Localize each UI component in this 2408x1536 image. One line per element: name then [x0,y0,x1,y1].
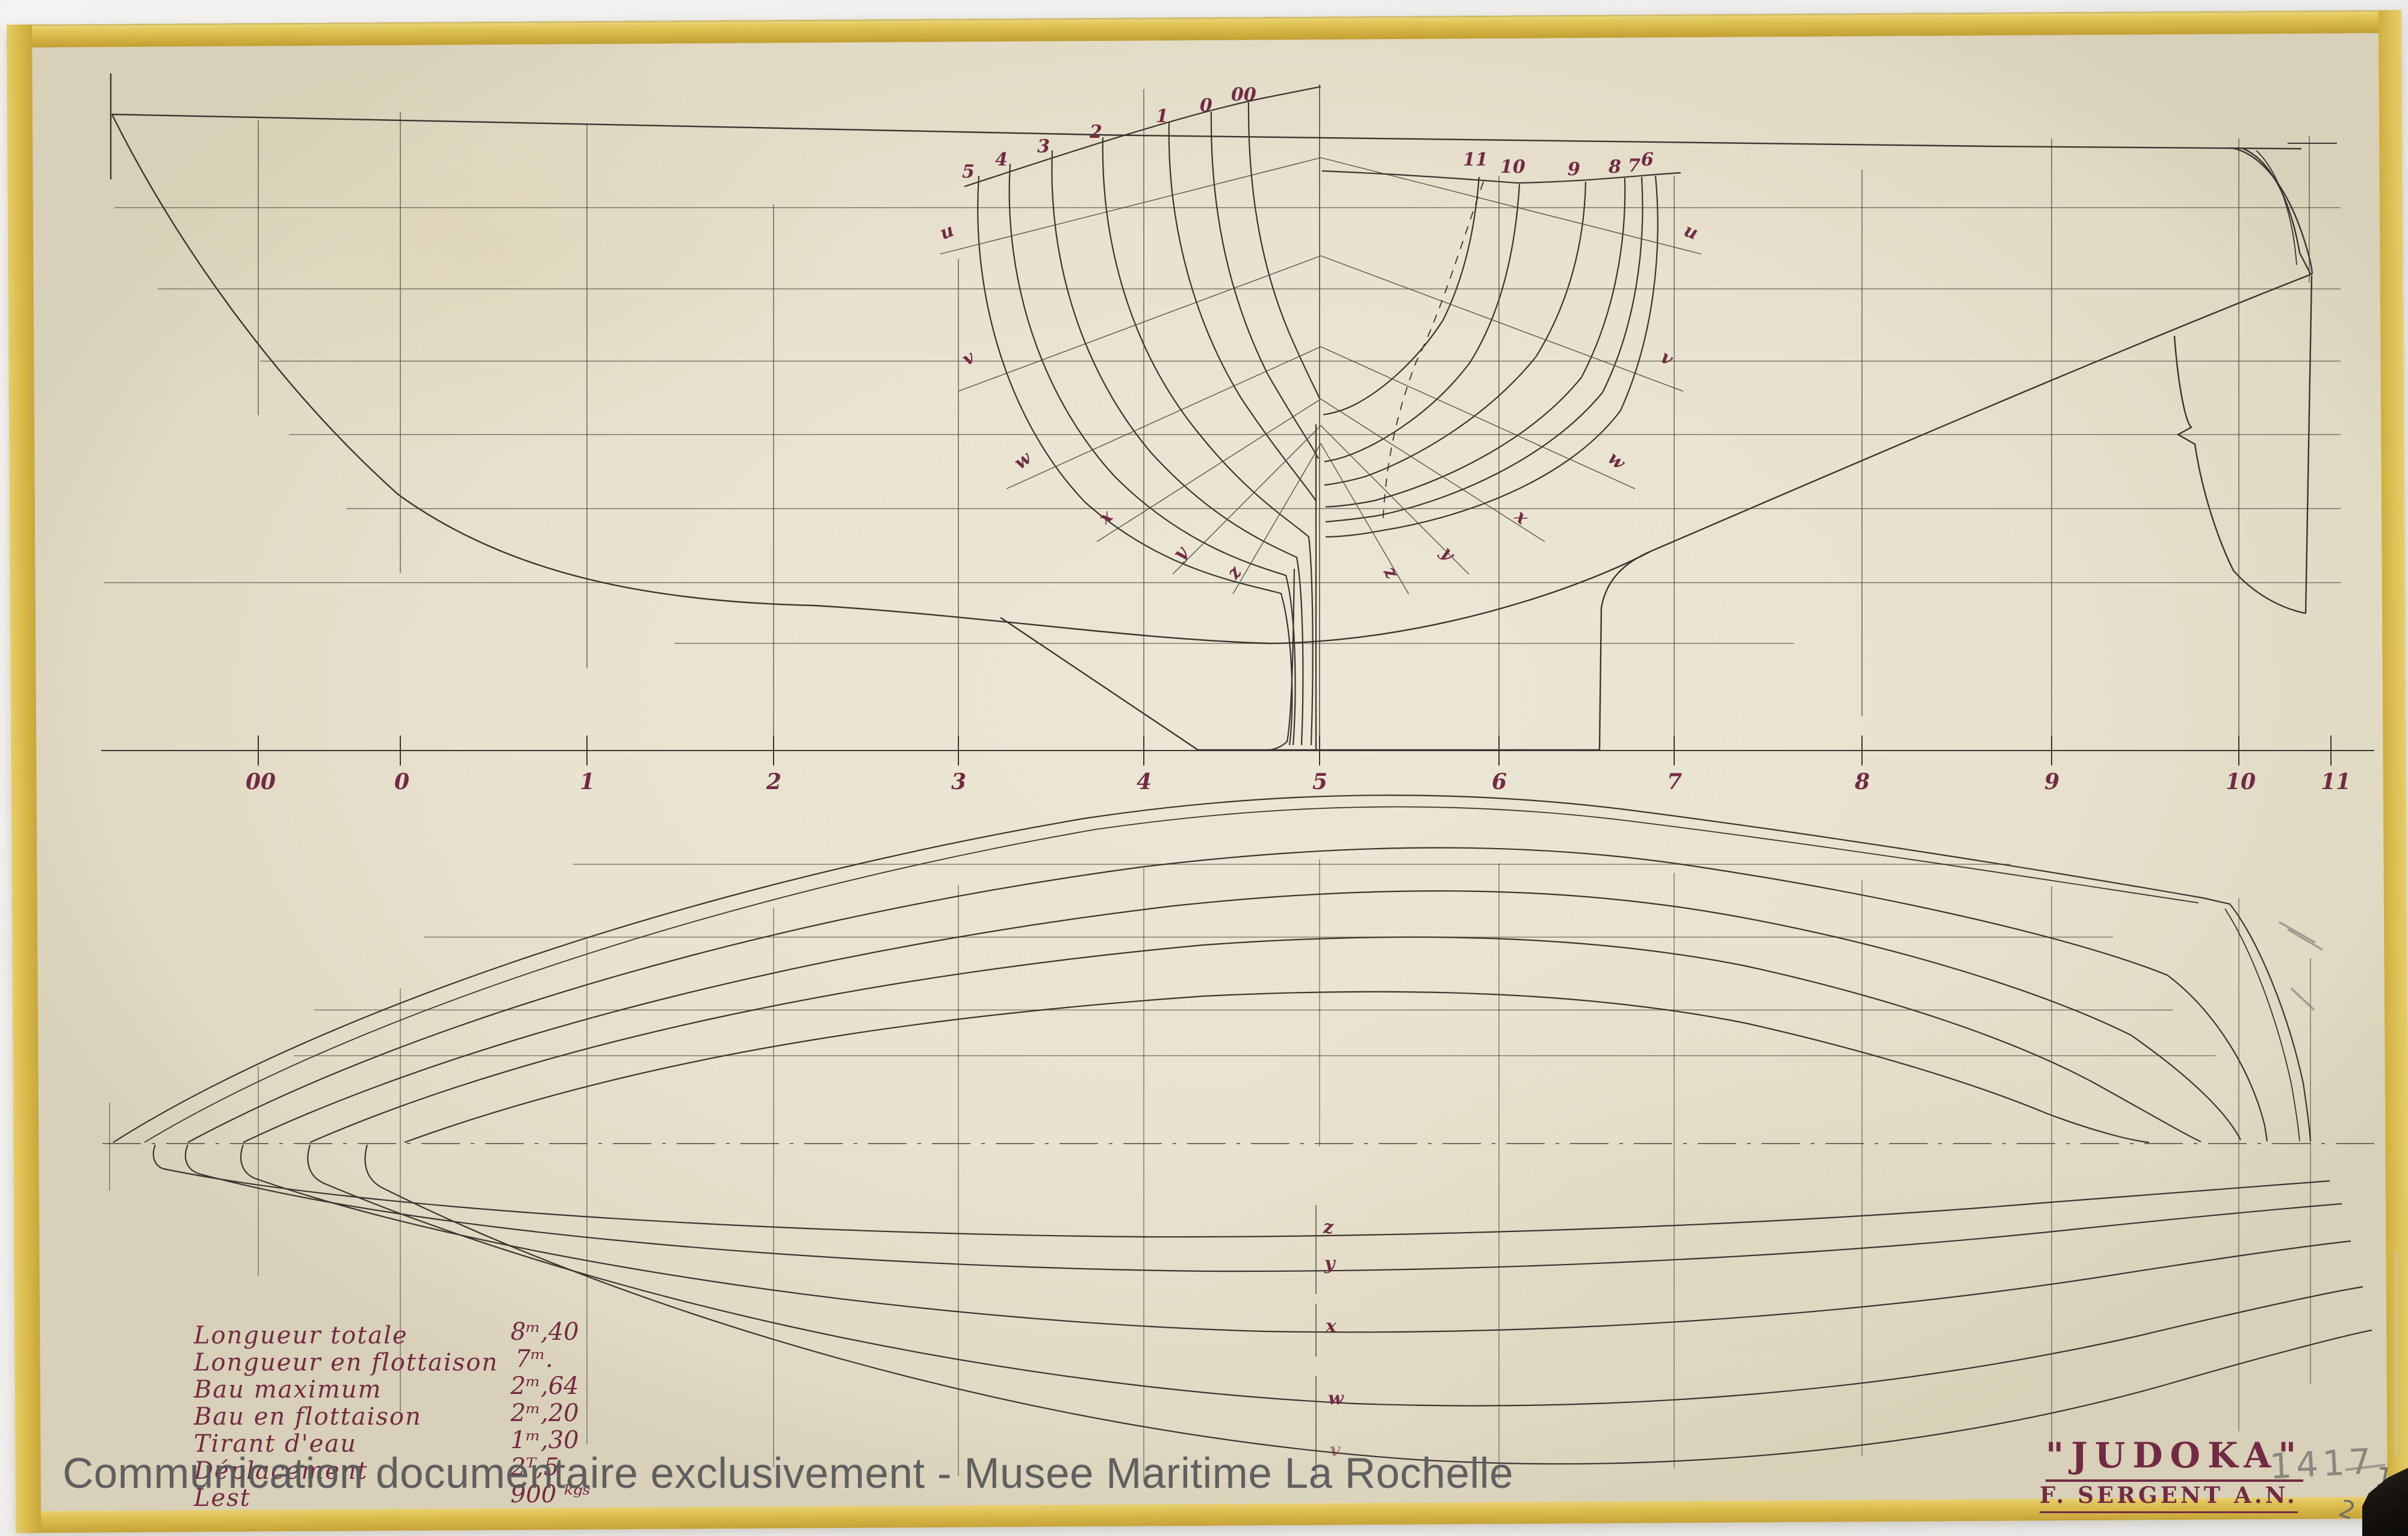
aft-section-label: 11 [1463,149,1488,170]
spec-value: 2ᵐ,64 [510,1372,579,1400]
hb-diagonal-label: w [1328,1388,1344,1409]
station-label: 10 [2226,769,2256,794]
drawing-number-pencil: 1417 [2268,1440,2376,1487]
spec-label: Bau maximum [194,1376,382,1404]
station-label: 9 [2044,769,2059,794]
station-label: 1 [580,769,595,794]
station-label: 4 [1137,769,1152,794]
aft-section-label: 8 [1609,156,1621,178]
spec-value: 2ᵐ,20 [510,1399,579,1427]
museum-watermark: Communication documentaire exclusivement… [63,1449,1513,1498]
spec-value: 7ᵐ. [515,1345,553,1373]
fore-section-label: 3 [1037,136,1050,157]
station-label: 3 [951,769,966,794]
fore-section-label: 4 [995,149,1008,170]
station-label: 0 [394,769,409,794]
aft-section-label: 10 [1500,156,1525,178]
station-label: 6 [1492,769,1507,794]
tape-border-right [2379,10,2408,1519]
fore-section-label: 1 [1156,106,1168,127]
spec-label: Longueur totale [194,1322,408,1349]
station-label: 11 [2321,769,2351,794]
scanned-lines-plan-photo: { "document": { "watermark": "Communicat… [0,0,2408,1536]
fore-section-label: 2 [1090,122,1102,143]
hb-diagonal-label: z [1323,1217,1333,1238]
fore-section-label: 5 [962,161,975,182]
fore-section-label: 00 [1231,84,1256,105]
aft-section-label: 9 [1568,159,1580,180]
station-label: 2 [766,769,781,794]
spec-value: 8ᵐ,40 [510,1318,579,1346]
hb-diagonal-label: y [1324,1253,1335,1274]
tape-border-top [7,10,2401,48]
spec-label: Longueur en flottaison [194,1349,498,1377]
boat-name-title: "JUDOKA" [2046,1435,2303,1482]
aft-section-label: 7 [1628,155,1640,176]
aft-section-label: 6 [1641,149,1654,170]
station-label: 8 [1855,769,1870,794]
station-label: 00 [246,769,276,794]
hb-diagonal-label: x [1326,1316,1336,1337]
station-label: 7 [1667,769,1682,794]
station-label: 5 [1312,769,1327,794]
spec-label: Bau en flottaison [194,1403,422,1431]
architect-signature: F. SERGENT A.N. [2040,1482,2298,1513]
tape-border-left [7,25,41,1533]
pencil-margin-line [2395,1252,2397,1457]
fore-section-label: 0 [1200,95,1212,116]
